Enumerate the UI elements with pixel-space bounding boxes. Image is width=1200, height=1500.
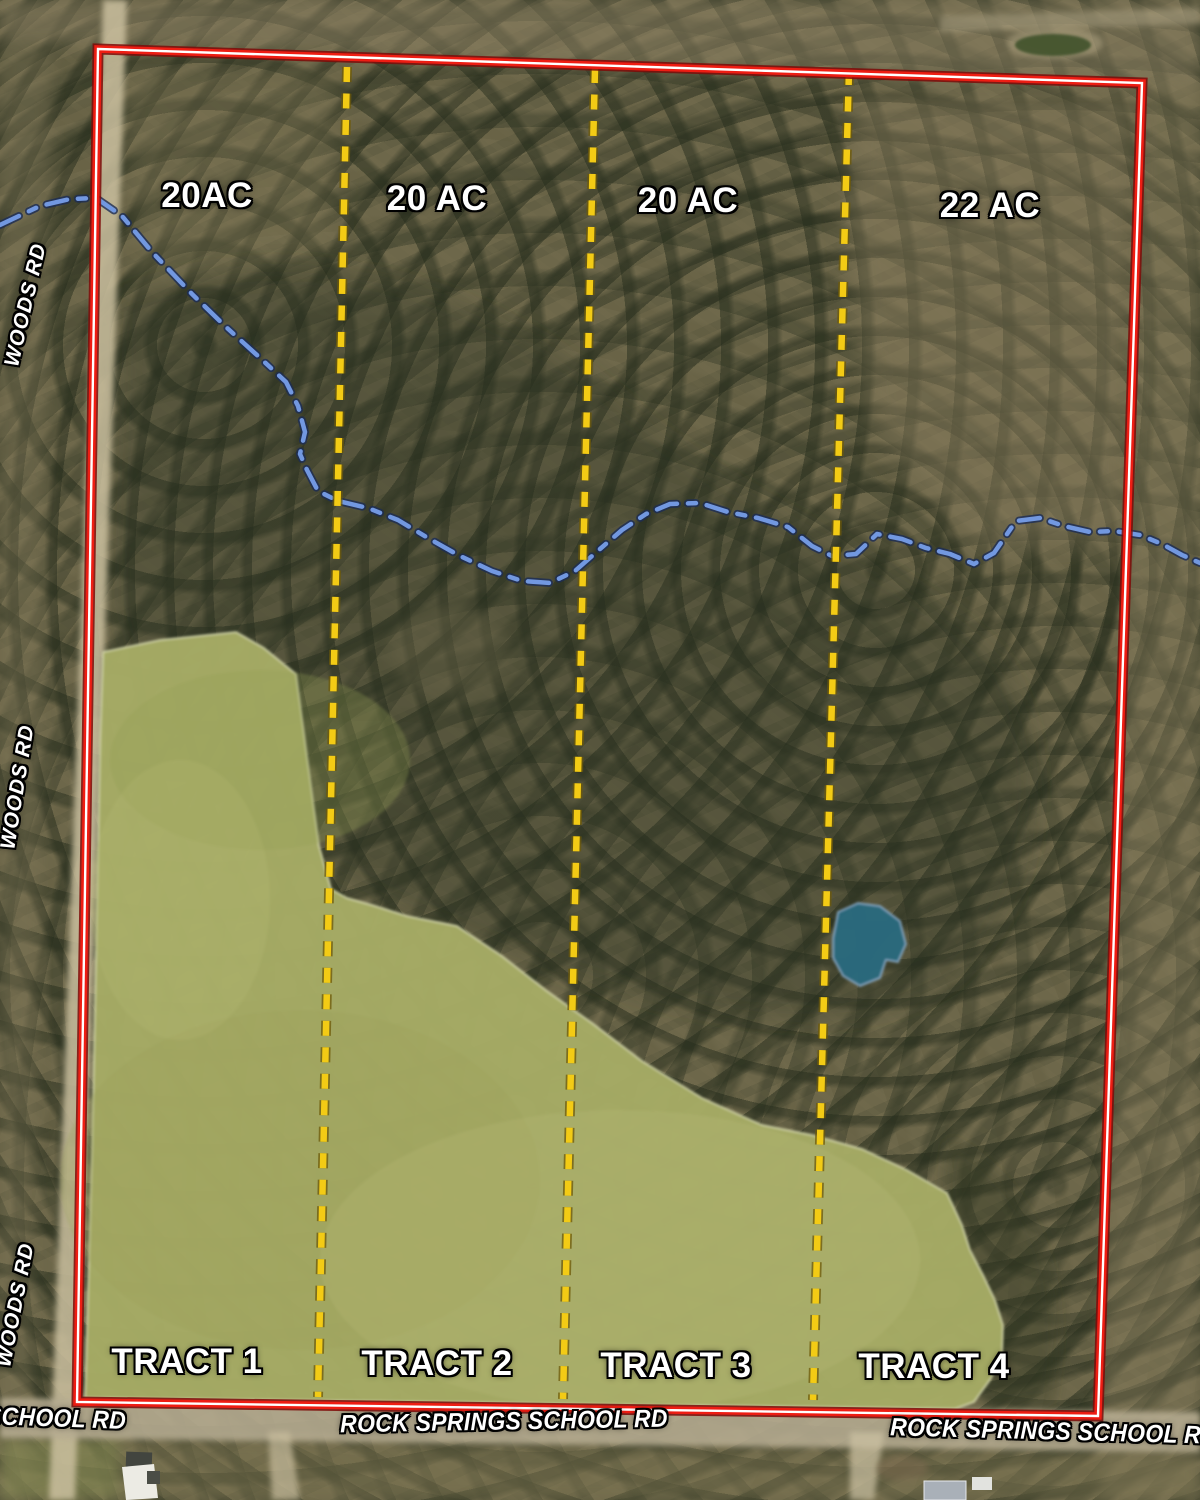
- school-rd-label-left: SCHOOL RD: [0, 1402, 126, 1436]
- tract1-label: TRACT 1: [111, 1342, 262, 1382]
- acreage-label-tract3: 20 AC: [638, 181, 738, 221]
- tract-survey-map: 20AC 20 AC 20 AC 22 AC TRACT 1 TRACT 2 T…: [0, 0, 1200, 1500]
- tract3-label: TRACT 3: [600, 1346, 751, 1386]
- acreage-label-tract4: 22 AC: [940, 186, 1040, 226]
- school-rd-label-center: ROCK SPRINGS SCHOOL RD: [340, 1405, 668, 1440]
- north-pond: [1007, 27, 1103, 59]
- tract2-label: TRACT 2: [361, 1344, 512, 1384]
- tract4-label: TRACT 4: [858, 1347, 1009, 1387]
- acreage-label-tract1: 20AC: [161, 176, 252, 216]
- acreage-label-tract2: 20 AC: [387, 179, 487, 219]
